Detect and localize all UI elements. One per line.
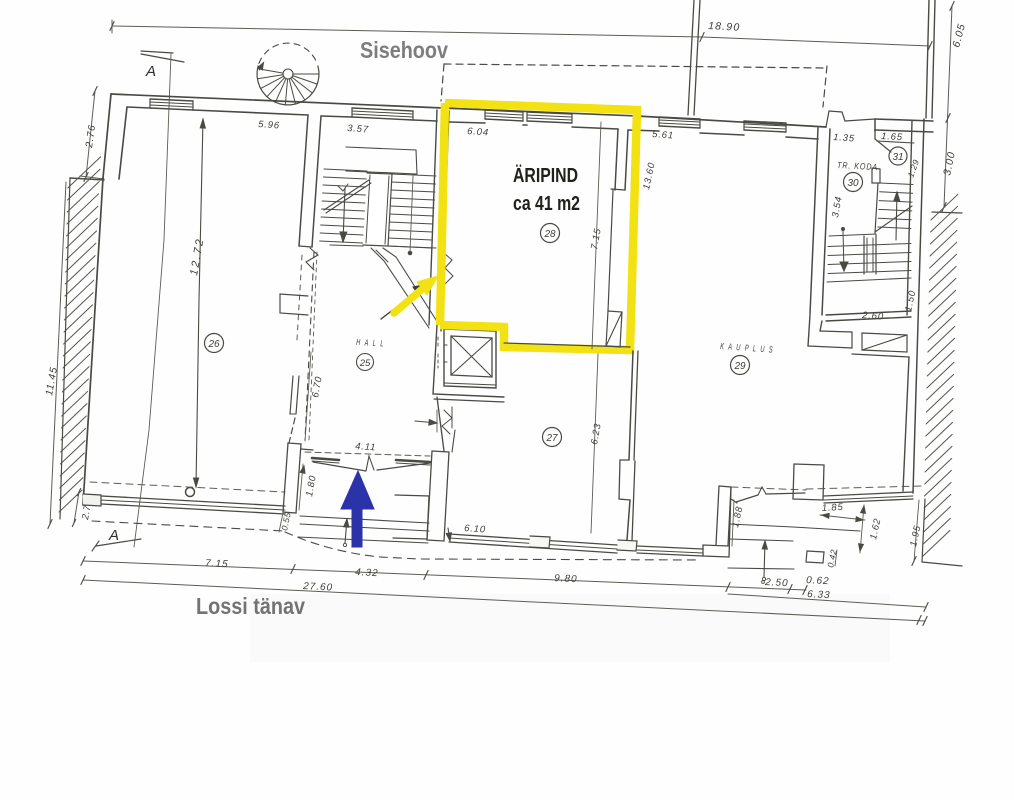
svg-text:Lossi tänav: Lossi tänav	[196, 593, 305, 619]
svg-text:6.05: 6.05	[950, 22, 968, 49]
svg-text:Sisehoov: Sisehoov	[360, 37, 448, 63]
svg-text:30: 30	[847, 178, 859, 189]
svg-text:12.72: 12.72	[188, 236, 207, 276]
svg-text:1.85: 1.85	[822, 502, 844, 514]
svg-text:3.00: 3.00	[941, 150, 958, 176]
svg-text:2.76: 2.76	[84, 124, 98, 150]
svg-text:1.50: 1.50	[903, 289, 918, 313]
svg-text:1.80: 1.80	[304, 474, 319, 497]
svg-text:ÄRIPIND: ÄRIPIND	[513, 164, 578, 187]
svg-text:1.65: 1.65	[881, 131, 903, 143]
svg-text:28: 28	[543, 229, 556, 240]
svg-text:1.29: 1.29	[905, 158, 921, 179]
svg-text:26: 26	[207, 339, 220, 350]
svg-text:1.62: 1.62	[868, 517, 883, 541]
svg-text:5.96: 5.96	[258, 119, 280, 131]
svg-text:4.11: 4.11	[355, 441, 377, 453]
svg-text:9.80: 9.80	[554, 573, 578, 585]
svg-text:ca 41 m2: ca 41 m2	[513, 193, 580, 215]
svg-text:5.61: 5.61	[652, 129, 674, 141]
svg-text:13.60: 13.60	[641, 161, 658, 190]
svg-text:6.10: 6.10	[464, 523, 486, 535]
svg-text:29: 29	[733, 361, 746, 372]
svg-text:7.15: 7.15	[589, 227, 604, 250]
svg-text:H A L L: H A L L	[356, 337, 385, 349]
svg-text:27.60: 27.60	[302, 581, 334, 594]
svg-text:6.04: 6.04	[467, 126, 489, 138]
svg-text:A: A	[108, 527, 120, 544]
svg-text:25: 25	[359, 358, 371, 369]
svg-text:1.95: 1.95	[908, 524, 923, 548]
svg-text:6.70: 6.70	[310, 375, 325, 398]
svg-text:K A U P L U S: K A U P L U S	[720, 341, 775, 355]
svg-text:0.62: 0.62	[806, 575, 830, 587]
svg-text:3.54: 3.54	[830, 195, 845, 218]
svg-text:2.50: 2.50	[764, 577, 789, 589]
svg-text:0.42: 0.42	[825, 548, 839, 568]
svg-text:2.60: 2.60	[861, 310, 884, 323]
svg-text:6.23: 6.23	[589, 422, 604, 445]
svg-text:1.35: 1.35	[833, 132, 855, 144]
svg-text:3.57: 3.57	[347, 123, 369, 135]
svg-text:4.32: 4.32	[355, 567, 379, 579]
svg-text:18.90: 18.90	[708, 20, 741, 34]
svg-text:A: A	[145, 63, 156, 80]
svg-text:27: 27	[545, 433, 558, 444]
svg-text:11.45: 11.45	[44, 366, 60, 397]
svg-text:7.15: 7.15	[205, 558, 229, 570]
svg-text:31: 31	[892, 152, 903, 163]
